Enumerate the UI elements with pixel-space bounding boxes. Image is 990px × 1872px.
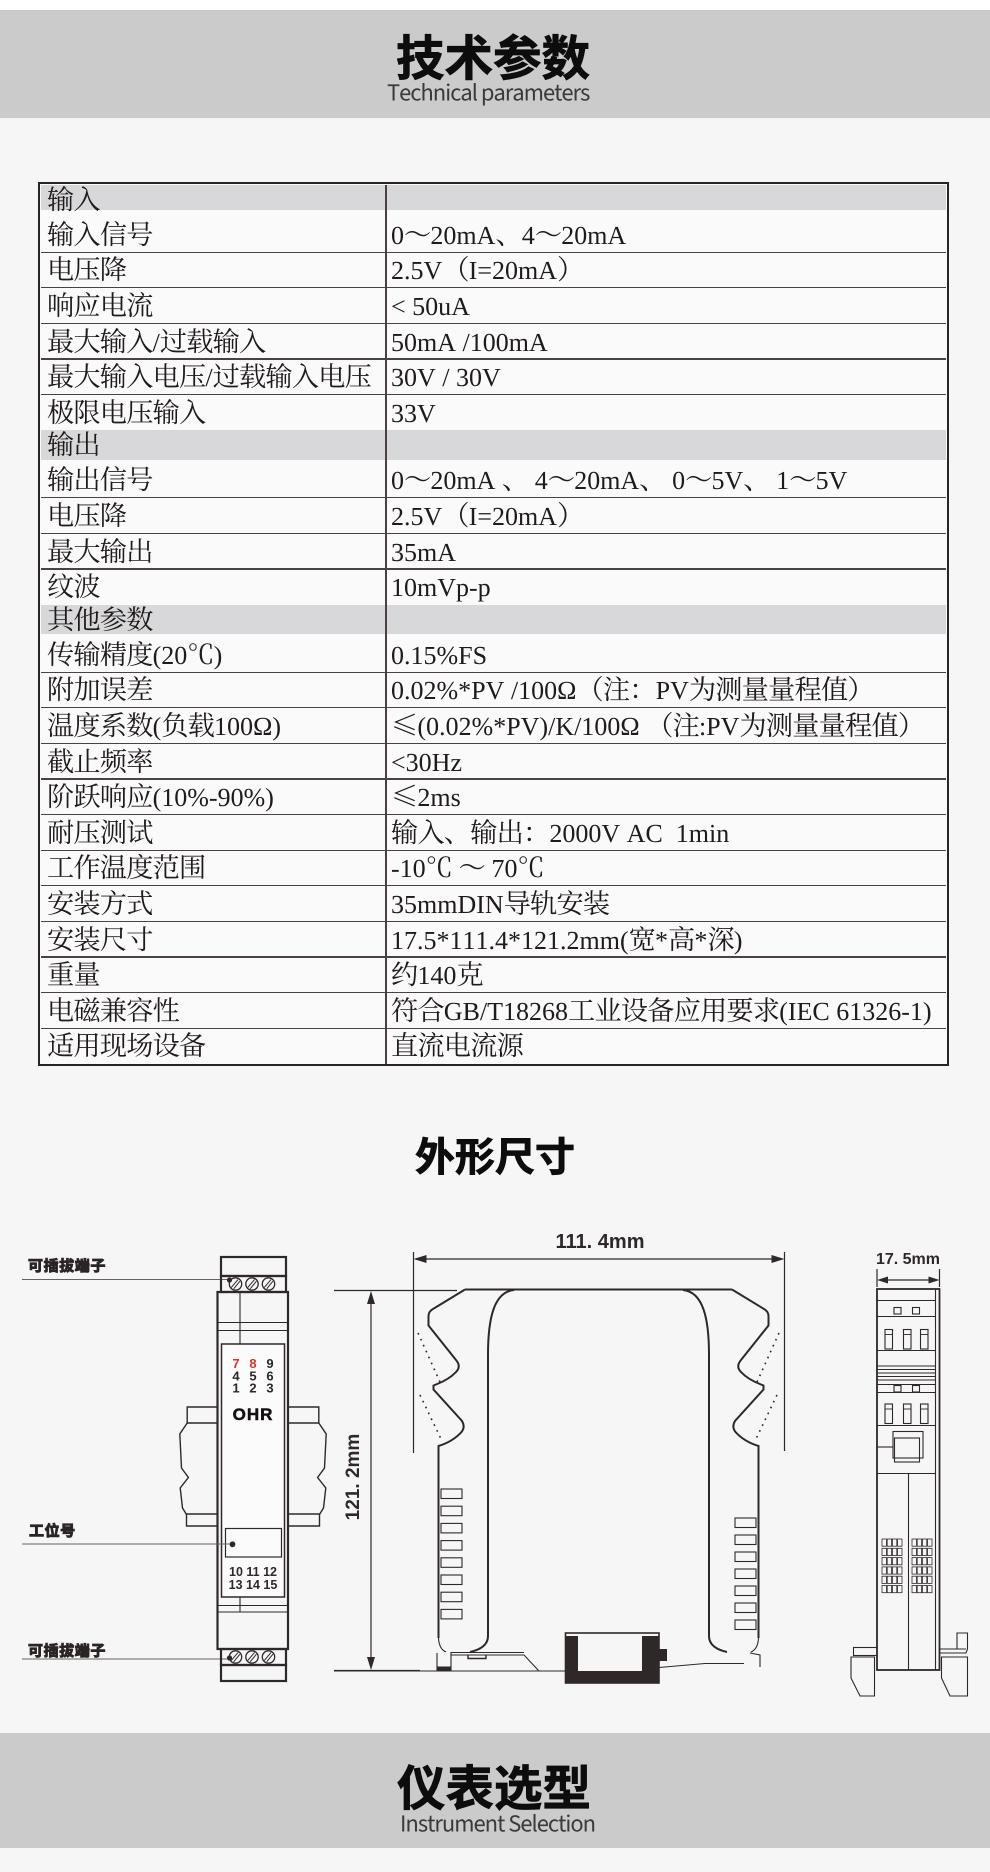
svg-text:2: 2	[249, 1381, 256, 1396]
svg-text:10 11 12: 10 11 12	[229, 1565, 277, 1579]
svg-text:121. 2mm: 121. 2mm	[343, 1434, 364, 1521]
svg-text:13 14 15: 13 14 15	[229, 1578, 278, 1592]
svg-text:111. 4mm: 111. 4mm	[556, 1231, 645, 1253]
svg-text:OHR: OHR	[233, 1405, 274, 1424]
svg-text:3: 3	[266, 1381, 273, 1396]
svg-text:1: 1	[232, 1381, 239, 1396]
svg-text:17. 5mm: 17. 5mm	[876, 1251, 940, 1268]
